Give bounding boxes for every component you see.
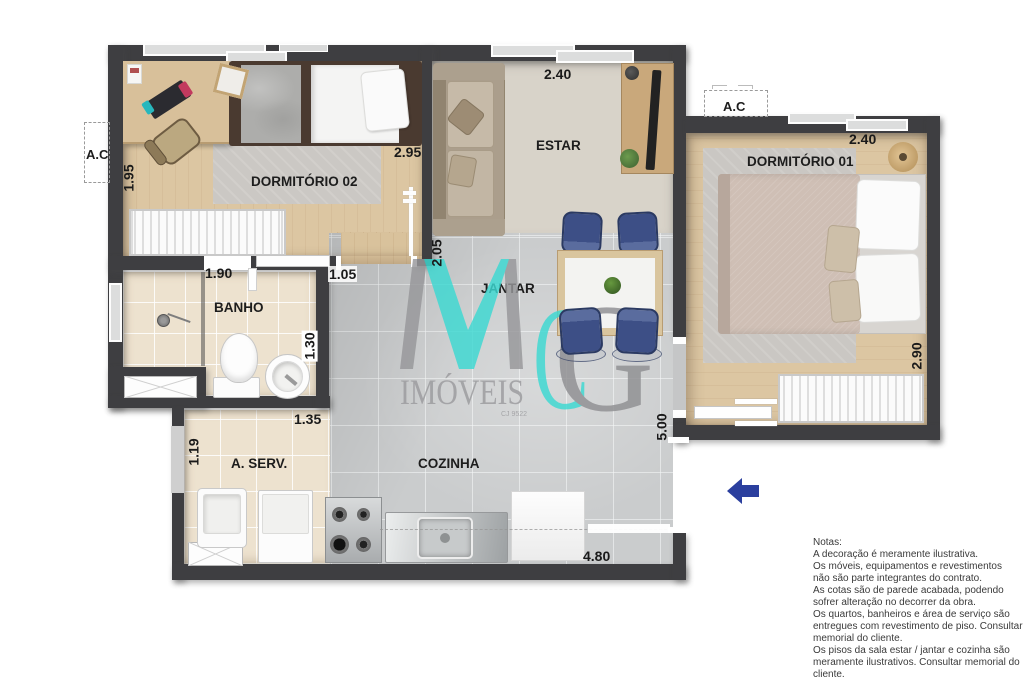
svg-text:CJ 9522: CJ 9522 — [501, 411, 527, 418]
svg-text:IMÓVEIS: IMÓVEIS — [400, 372, 524, 412]
